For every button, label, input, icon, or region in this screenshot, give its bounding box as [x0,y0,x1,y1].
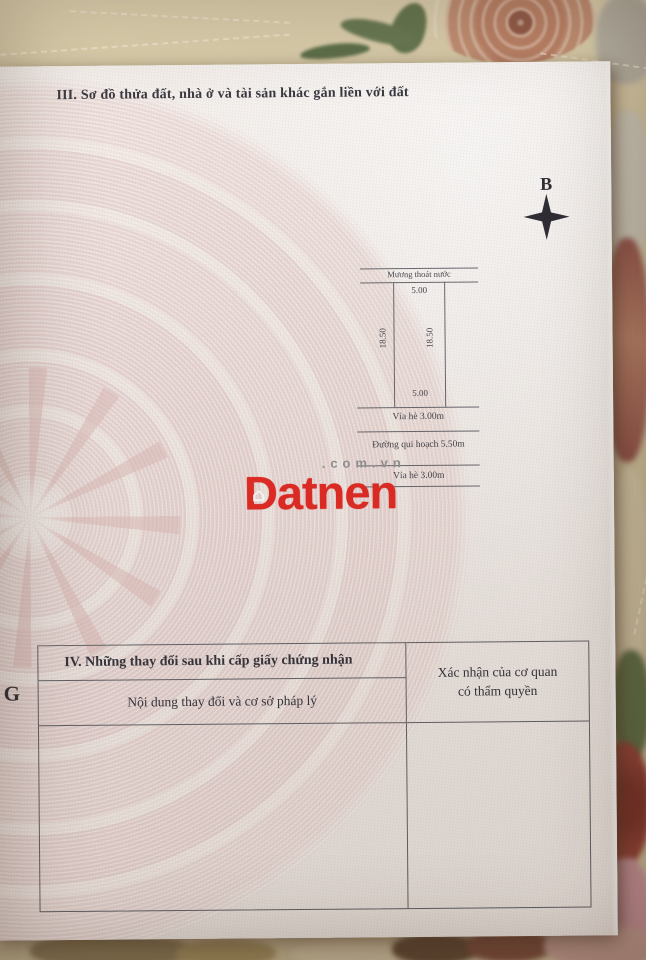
certificate-page: III. Sơ đồ thửa đất, nhà ở và tài sản kh… [0,61,618,940]
section-iv-heading: IV. Những thay đổi sau khi cấp giấy chứn… [38,643,405,681]
compass-star-icon [522,193,570,241]
quilt-stitch [70,10,290,24]
drum-star-pattern [0,366,181,669]
canal-label: Mương thoát nước [360,268,478,279]
dimension-right: 18.50 [424,318,434,358]
section-iv-table: IV. Những thay đổi sau khi cấp giấy chứn… [37,640,591,912]
photo-of-land-certificate: III. Sơ đồ thửa đất, nhà ở và tài sản kh… [0,0,646,960]
watermark-brand: Datnen [244,467,398,518]
dimension-top: 5.00 [393,285,445,295]
table-body [39,721,591,912]
table-cell-content-empty [39,723,409,911]
rose-flower [428,0,596,64]
dimension-bottom: 5.00 [394,388,446,398]
column-header-confirmation: Xác nhận của cơ quan có thẩm quyền [406,642,589,723]
column-header-confirmation-line1: Xác nhận của cơ quan [438,663,558,682]
quilt-stitch [0,34,290,57]
margin-letter: G [4,681,21,706]
watermark: .com.vn Datnen ⌂ [0,61,610,66]
sidewalk-front-label: Vỉa hè 3.00m [357,411,479,422]
column-header-content: Nội dung thay đổi và cơ sở pháp lý [39,678,406,725]
planned-road-label: Đường qui hoạch 5.50m [357,439,479,450]
compass-north: B [522,175,571,246]
table-header: IV. Những thay đổi sau khi cấp giấy chứn… [38,642,589,726]
house-icon: ⌂ [252,484,266,506]
column-header-confirmation-line2: có thẩm quyền [458,681,538,700]
dimension-left: 18.50 [377,318,387,358]
table-header-left: IV. Những thay đổi sau khi cấp giấy chứn… [38,643,407,725]
section-iii-heading: III. Sơ đồ thửa đất, nhà ở và tài sản kh… [56,85,408,104]
fabric-bottom [176,940,276,960]
plot-diagram: Mương thoát nước 5.00 18.50 18.50 5.00 V… [0,61,610,66]
leaf-decoration [299,40,370,61]
north-label: B [522,175,570,193]
